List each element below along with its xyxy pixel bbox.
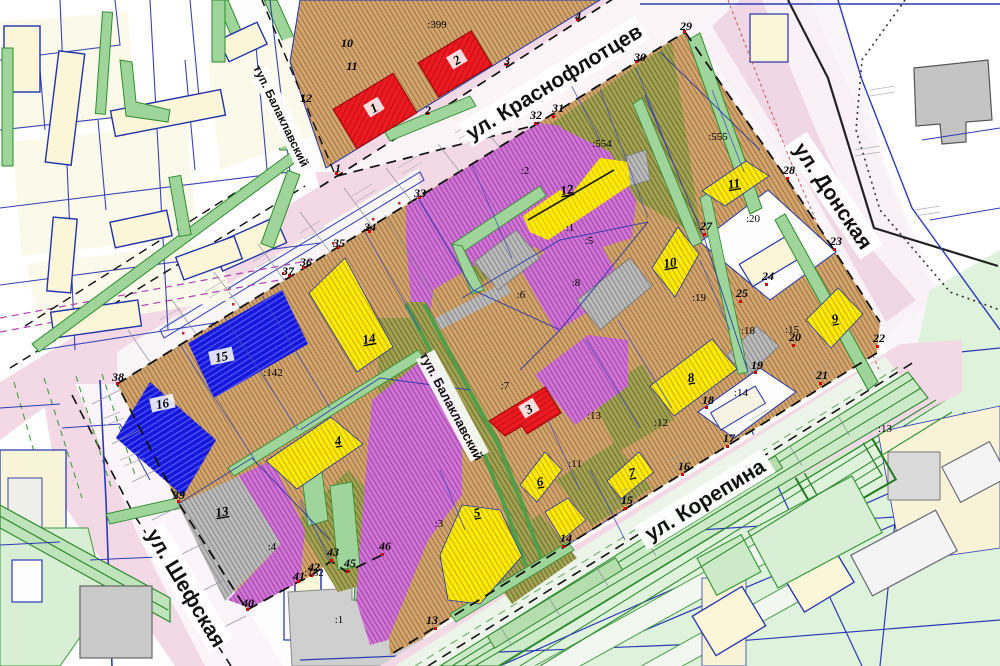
svg-text::2: :2 (521, 165, 530, 177)
svg-text:3: 3 (503, 54, 510, 68)
svg-text:30: 30 (633, 50, 646, 64)
svg-text::11: :11 (568, 458, 582, 470)
svg-text::14: :14 (734, 387, 749, 399)
svg-text::13: :13 (587, 410, 602, 422)
svg-text::20: :20 (746, 213, 761, 225)
svg-text:27: 27 (699, 219, 713, 233)
svg-text:41: 41 (292, 569, 305, 583)
svg-text::4: :4 (268, 541, 277, 553)
svg-text:29: 29 (679, 19, 692, 33)
svg-text:16: 16 (678, 459, 690, 473)
svg-text::1: :1 (566, 222, 575, 234)
svg-text:21: 21 (815, 368, 828, 382)
svg-text:18: 18 (702, 393, 714, 407)
svg-text::5: :5 (585, 235, 594, 247)
svg-text:45: 45 (343, 556, 356, 570)
svg-text::7: :7 (501, 380, 510, 392)
svg-text:22: 22 (872, 331, 885, 345)
svg-text:34: 34 (363, 220, 376, 234)
svg-text:43: 43 (326, 545, 339, 559)
svg-text:46: 46 (378, 539, 391, 553)
svg-text:42: 42 (307, 560, 320, 574)
svg-text:37: 37 (281, 264, 295, 278)
svg-text:36: 36 (299, 255, 312, 269)
svg-text:24: 24 (761, 269, 774, 283)
svg-text:35: 35 (332, 236, 345, 250)
svg-text::555: :555 (708, 131, 728, 143)
svg-text:11: 11 (346, 59, 357, 73)
svg-text::18: :18 (741, 325, 756, 337)
svg-text:19: 19 (751, 358, 763, 372)
svg-text::13: :13 (878, 423, 893, 435)
svg-text:33: 33 (413, 186, 426, 200)
svg-text:11: 11 (727, 175, 742, 192)
svg-text::19: :19 (692, 292, 707, 304)
svg-text:12: 12 (300, 91, 312, 105)
svg-text:40: 40 (241, 596, 254, 610)
svg-text:20: 20 (788, 330, 801, 344)
svg-text:4: 4 (574, 9, 581, 23)
svg-text::554: :554 (592, 138, 612, 150)
svg-text::12: :12 (654, 417, 668, 429)
svg-text:13: 13 (426, 613, 438, 627)
svg-text:39: 39 (172, 488, 185, 502)
svg-text:2: 2 (424, 103, 431, 117)
svg-text:31: 31 (551, 101, 564, 115)
svg-text:23: 23 (829, 234, 842, 248)
svg-text:28: 28 (782, 163, 795, 177)
svg-text:32: 32 (529, 108, 542, 122)
svg-text:10: 10 (341, 36, 353, 50)
svg-text::142: :142 (263, 367, 283, 379)
svg-text::1: :1 (335, 614, 344, 626)
svg-text::3: :3 (435, 518, 444, 530)
svg-text:25: 25 (735, 286, 748, 300)
svg-text::6: :6 (517, 289, 526, 301)
svg-text:17: 17 (723, 431, 736, 445)
svg-text::8: :8 (572, 277, 581, 289)
svg-text:15: 15 (621, 493, 633, 507)
svg-text:14: 14 (560, 531, 572, 545)
svg-text:1: 1 (335, 161, 341, 175)
svg-text::399: :399 (427, 19, 447, 31)
svg-text:38: 38 (111, 370, 124, 384)
